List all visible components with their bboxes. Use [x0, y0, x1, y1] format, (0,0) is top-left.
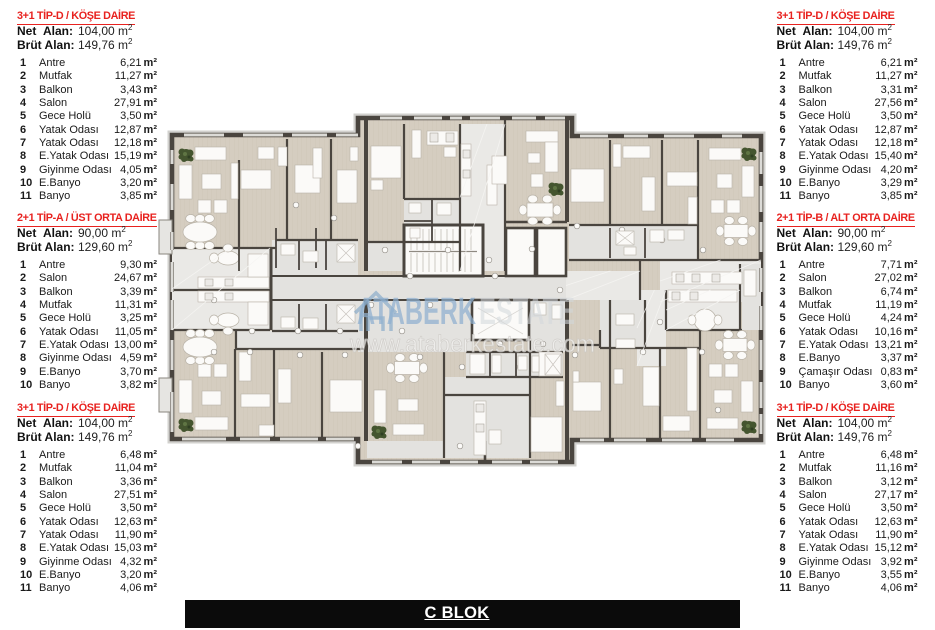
- svg-text:www.ataberkestate.com: www.ataberkestate.com: [349, 331, 595, 358]
- svg-text:ATABERK: ATABERK: [357, 291, 476, 333]
- svg-text:ESTATE: ESTATE: [479, 291, 575, 333]
